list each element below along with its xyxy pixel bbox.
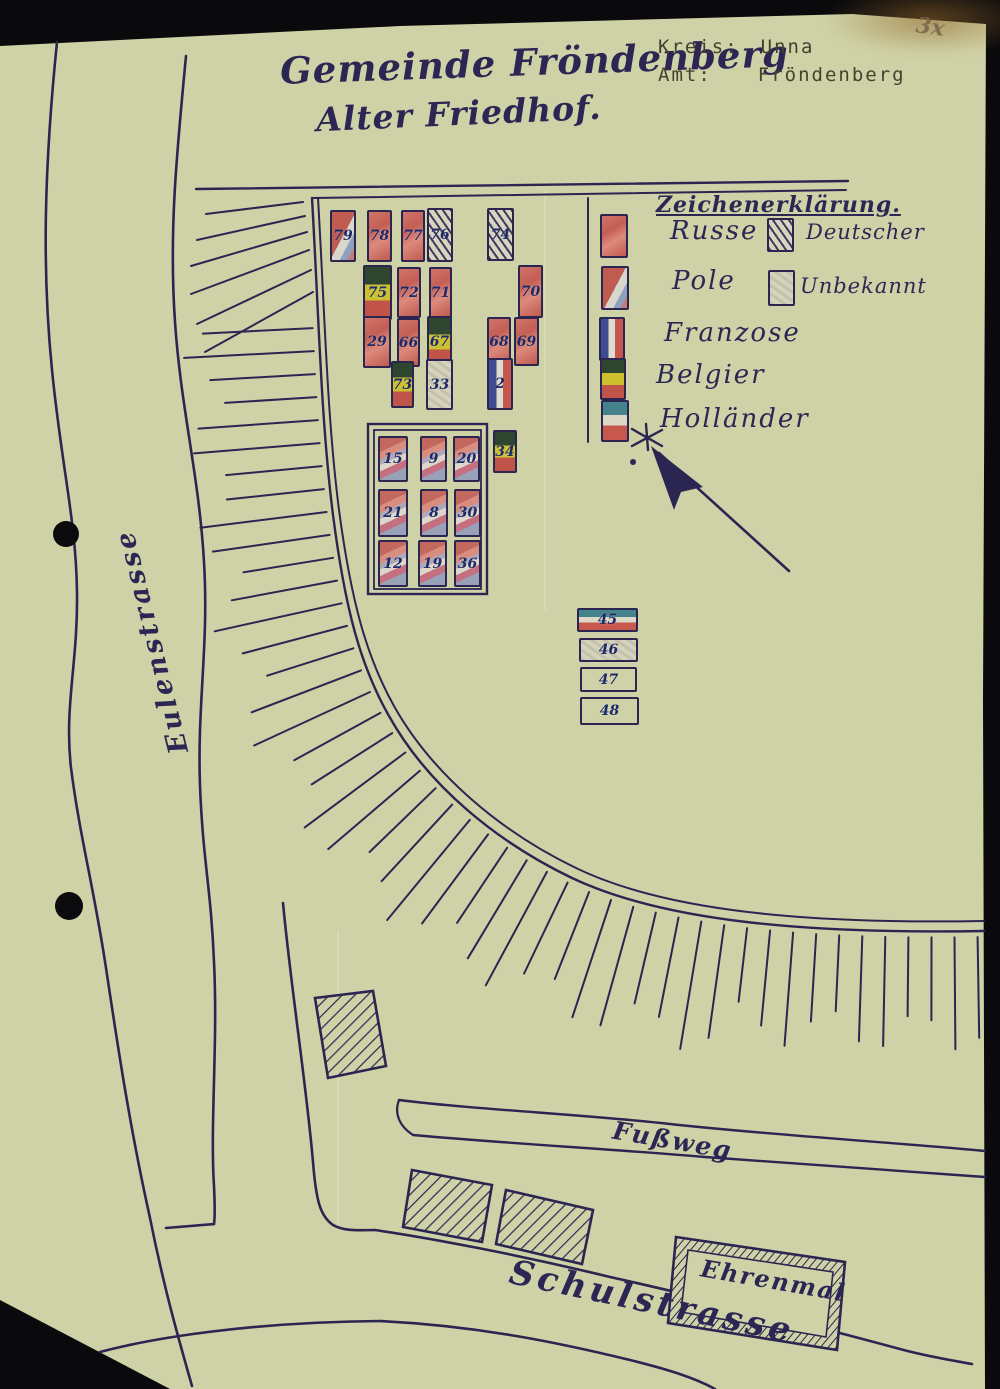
grave-12: 12	[378, 540, 408, 587]
grave-number: 45	[598, 612, 617, 628]
grave-number: 15	[383, 451, 402, 467]
grave-number: 71	[431, 285, 450, 301]
grave-number: 73	[393, 377, 412, 393]
grave-number: 8	[429, 505, 439, 521]
grave-33: 33	[426, 359, 453, 410]
legend-label-hollaender: Holländer	[660, 404, 810, 434]
kreis-label: Kreis:	[658, 36, 739, 58]
kreis-line: Kreis:Unna	[658, 36, 814, 58]
grave-number: 34	[495, 444, 514, 460]
grave-number: 36	[458, 556, 477, 572]
grave-15: 15	[378, 436, 408, 482]
legend-heading: Zeichenerklärung.	[656, 192, 901, 218]
grave-number: 12	[383, 556, 402, 572]
slope-tick	[955, 937, 956, 1049]
kreis-value: Unna	[761, 36, 815, 58]
grave-number: 79	[333, 228, 352, 244]
grave-73: 73	[391, 361, 414, 408]
grave-72: 72	[397, 267, 421, 318]
grave-70: 70	[518, 265, 543, 318]
grave-number: 48	[600, 703, 619, 719]
grave-77: 77	[401, 210, 425, 262]
paper-crease	[337, 930, 339, 1230]
amt-value: Fröndenberg	[758, 64, 906, 86]
grave-number: 72	[399, 285, 418, 301]
grave-36: 36	[454, 540, 481, 587]
grave-number: 9	[429, 451, 439, 467]
legend-label-franzose: Franzose	[664, 318, 801, 348]
legend-label-pole: Pole	[672, 266, 736, 296]
legend-label-russe: Russe	[670, 216, 758, 246]
grave-78: 78	[367, 210, 392, 262]
legend-label-deutscher: Deutscher	[806, 220, 925, 244]
grave-number: 20	[457, 451, 476, 467]
pencil-corner-note: 3x	[914, 12, 946, 42]
legend-label-belgier: Belgier	[656, 360, 766, 390]
punch-hole-bottom	[55, 892, 83, 920]
grave-number: 78	[370, 228, 389, 244]
legend-swatch-hollaender	[601, 400, 629, 442]
grave-9: 9	[420, 436, 447, 482]
grave-48: 48	[580, 697, 639, 725]
grave-76: 76	[427, 208, 453, 262]
slope-tick	[908, 937, 909, 1016]
grave-number: 2	[495, 376, 505, 392]
legend-swatch-russe	[600, 214, 628, 258]
grave-number: 69	[517, 334, 536, 350]
amt-line: Amt:Fröndenberg	[658, 64, 906, 86]
grave-75: 75	[363, 265, 392, 320]
legend-swatch-deutscher	[767, 218, 794, 252]
grave-number: 77	[403, 228, 422, 244]
grave-19: 19	[418, 540, 447, 587]
grave-34: 34	[493, 430, 517, 473]
grave-number: 33	[430, 377, 449, 393]
grave-number: 66	[399, 335, 418, 351]
grave-number: 19	[423, 556, 442, 572]
paper-stain	[826, 0, 1000, 54]
grave-number: 21	[383, 505, 402, 521]
legend-label-unbekannt: Unbekannt	[800, 274, 927, 298]
legend-swatch-unbekannt	[768, 270, 795, 306]
grave-number: 67	[430, 334, 449, 350]
grave-74: 74	[487, 208, 514, 261]
grave-8: 8	[420, 489, 448, 537]
grave-number: 70	[521, 284, 540, 300]
grave-number: 47	[599, 672, 618, 688]
legend-swatch-franzose	[599, 317, 625, 361]
grave-45: 45	[577, 608, 638, 632]
grave-number: 46	[599, 642, 618, 658]
grave-20: 20	[453, 436, 480, 482]
grave-2: 2	[487, 358, 513, 410]
punch-hole-top	[53, 521, 79, 547]
grave-46: 46	[579, 638, 638, 662]
grave-number: 30	[458, 505, 477, 521]
grave-79: 79	[330, 210, 356, 262]
grave-69: 69	[514, 317, 539, 366]
scanned-cemetery-map-page: 3x Gemeinde Fröndenberg Alter Friedhof. …	[0, 0, 1000, 1389]
grave-number: 29	[367, 334, 386, 350]
grave-number: 75	[368, 285, 387, 301]
grave-21: 21	[378, 489, 408, 537]
grave-number: 76	[430, 227, 449, 243]
grave-29: 29	[363, 316, 391, 368]
grave-30: 30	[454, 489, 481, 537]
building-hatched-1	[315, 991, 386, 1078]
paper-crease	[544, 190, 546, 610]
legend-swatch-pole	[601, 266, 629, 310]
amt-label: Amt:	[658, 64, 712, 86]
grave-47: 47	[580, 667, 637, 692]
grave-66: 66	[397, 318, 420, 367]
grave-71: 71	[429, 267, 452, 318]
legend-swatch-belgier	[600, 358, 626, 400]
grave-number: 68	[489, 334, 508, 350]
grave-number: 74	[491, 227, 510, 243]
north-star-dot	[630, 459, 636, 465]
